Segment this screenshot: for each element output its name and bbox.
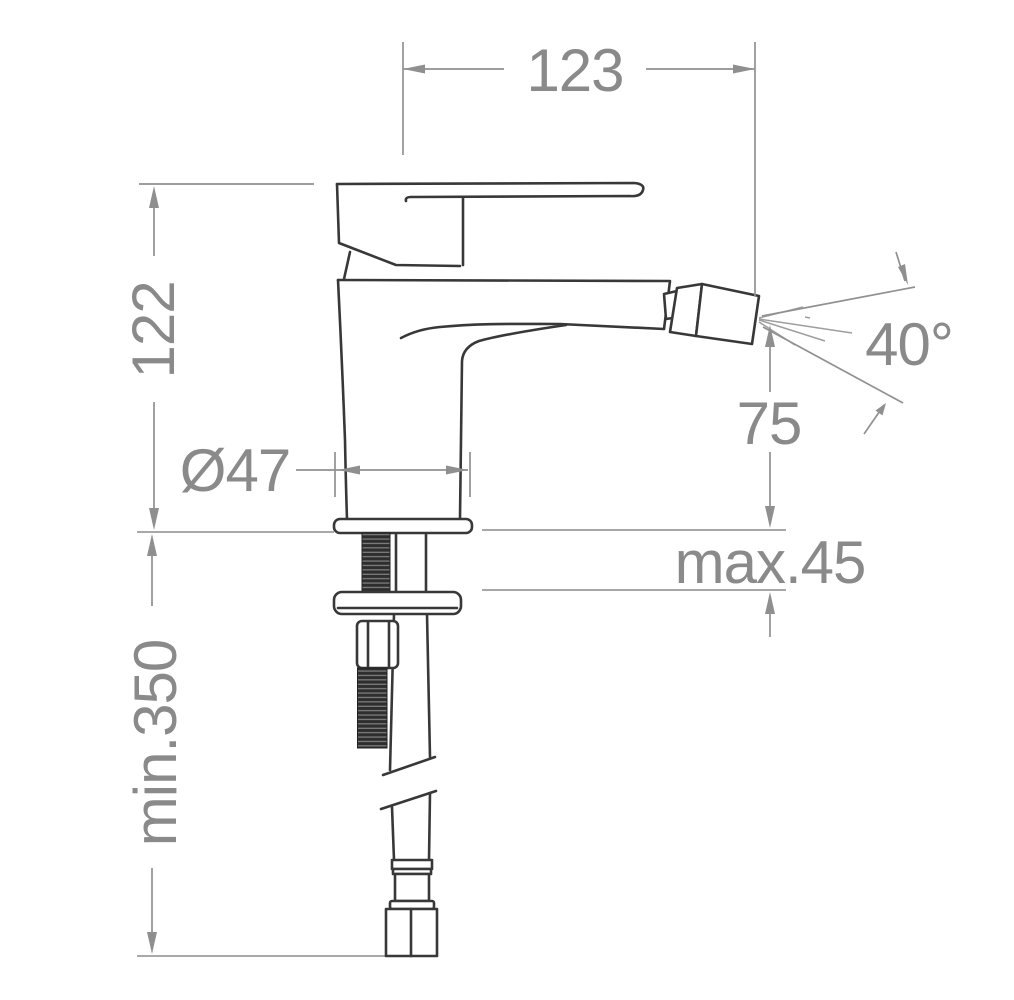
dim-label-spout-height: 75 bbox=[737, 390, 802, 457]
dim-spout-reach: 123 bbox=[403, 37, 755, 296]
dim-label-min-hose-length: min.350 bbox=[122, 640, 189, 846]
hose-end-fitting bbox=[386, 860, 437, 956]
bidet-faucet-dimension-drawing: 123 122 Ø47 40° 75 max.45 bbox=[0, 0, 1014, 1000]
handle-lever bbox=[337, 183, 643, 279]
clamping-washer bbox=[334, 592, 461, 614]
fixing-nut bbox=[357, 621, 398, 668]
dim-min-hose-length: min.350 bbox=[122, 534, 189, 954]
dim-label-body-height: 122 bbox=[120, 281, 187, 378]
dim-base-diameter: Ø47 bbox=[180, 437, 470, 504]
threaded-stud-upper bbox=[362, 533, 390, 593]
threaded-stud-lower bbox=[358, 668, 388, 748]
dim-label-max-mounting-thickness: max.45 bbox=[675, 529, 866, 596]
dim-label-spray-angle: 40° bbox=[865, 311, 953, 378]
faucet-body bbox=[338, 280, 670, 519]
dim-max-mounting-thickness: max.45 bbox=[675, 529, 866, 637]
dim-spout-height: 75 bbox=[737, 325, 802, 528]
dim-label-spout-reach: 123 bbox=[526, 37, 623, 104]
base-plate bbox=[334, 519, 472, 533]
spout-aerator bbox=[664, 284, 759, 344]
technical-drawing-canvas: 123 122 Ø47 40° 75 max.45 bbox=[0, 0, 1014, 1000]
dim-label-base-diameter: Ø47 bbox=[180, 437, 290, 504]
